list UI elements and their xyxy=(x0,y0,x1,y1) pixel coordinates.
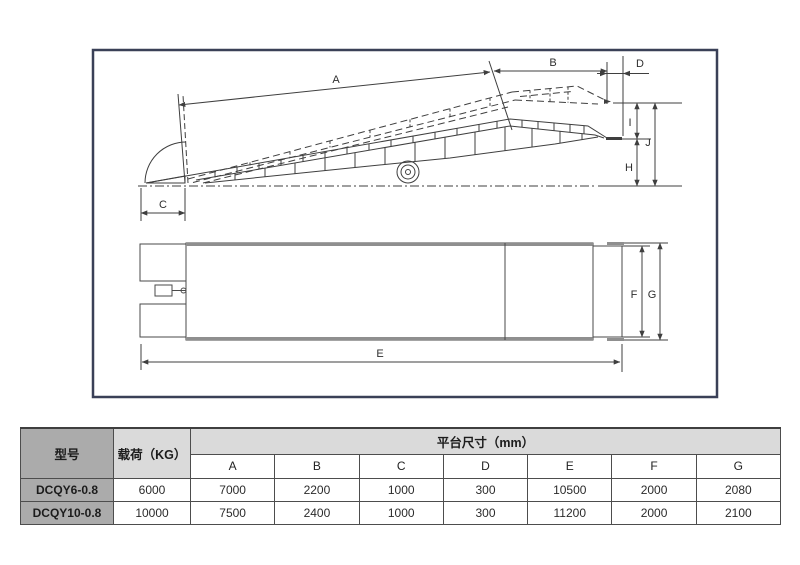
dim-cell: 2200 xyxy=(275,478,359,501)
table-row: DCQY10-0.8 10000 7500 2400 1000 300 1120… xyxy=(21,501,781,524)
dim-label-f: F xyxy=(631,289,638,301)
dim-label-i: I xyxy=(628,117,631,129)
dim-cell: 10500 xyxy=(528,478,612,501)
load-header-cell: 载荷（KG） xyxy=(114,428,191,478)
dim-cell: 1000 xyxy=(359,478,443,501)
dim-label-a: A xyxy=(332,74,340,86)
dim-cell: 7000 xyxy=(191,478,275,501)
dim-label-h: H xyxy=(625,162,633,174)
dim-label-d: D xyxy=(636,58,644,70)
model-cell: DCQY10-0.8 xyxy=(21,501,114,524)
dim-cell: 11200 xyxy=(528,501,612,524)
dim-cell: 7500 xyxy=(191,501,275,524)
dim-label-b: B xyxy=(549,57,556,69)
dim-header-cell: A xyxy=(191,454,275,478)
table-row: DCQY6-0.8 6000 7000 2200 1000 300 10500 … xyxy=(21,478,781,501)
dim-cell: 300 xyxy=(443,478,527,501)
dim-cell: 2400 xyxy=(275,501,359,524)
load-cell: 6000 xyxy=(114,478,191,501)
dim-cell: 2000 xyxy=(612,501,696,524)
dim-cell: 1000 xyxy=(359,501,443,524)
dim-label-c: C xyxy=(159,199,167,211)
dim-header-cell: D xyxy=(443,454,527,478)
dim-label-j: J xyxy=(645,137,651,149)
dim-header-cell: G xyxy=(696,454,780,478)
dim-cell: 2080 xyxy=(696,478,780,501)
table-header-row-1: 型号 载荷（KG） 平台尺寸（mm） xyxy=(21,428,781,454)
spec-table: 型号 载荷（KG） 平台尺寸（mm） A B C D E F G DCQY6-0… xyxy=(20,427,781,525)
dim-header-cell: E xyxy=(528,454,612,478)
load-cell: 10000 xyxy=(114,501,191,524)
platform-header-cell: 平台尺寸（mm） xyxy=(191,428,781,454)
ramp-technical-drawing: A B C D E F G H I J xyxy=(0,0,800,420)
dim-label-e: E xyxy=(376,348,383,360)
dim-cell: 300 xyxy=(443,501,527,524)
dim-header-cell: B xyxy=(275,454,359,478)
dim-cell: 2100 xyxy=(696,501,780,524)
dim-header-cell: C xyxy=(359,454,443,478)
dim-label-g: G xyxy=(648,289,657,301)
model-header-cell: 型号 xyxy=(21,428,114,478)
dim-cell: 2000 xyxy=(612,478,696,501)
model-cell: DCQY6-0.8 xyxy=(21,478,114,501)
dim-header-cell: F xyxy=(612,454,696,478)
drawing-svg: A B C D E F G H I J xyxy=(0,0,800,420)
